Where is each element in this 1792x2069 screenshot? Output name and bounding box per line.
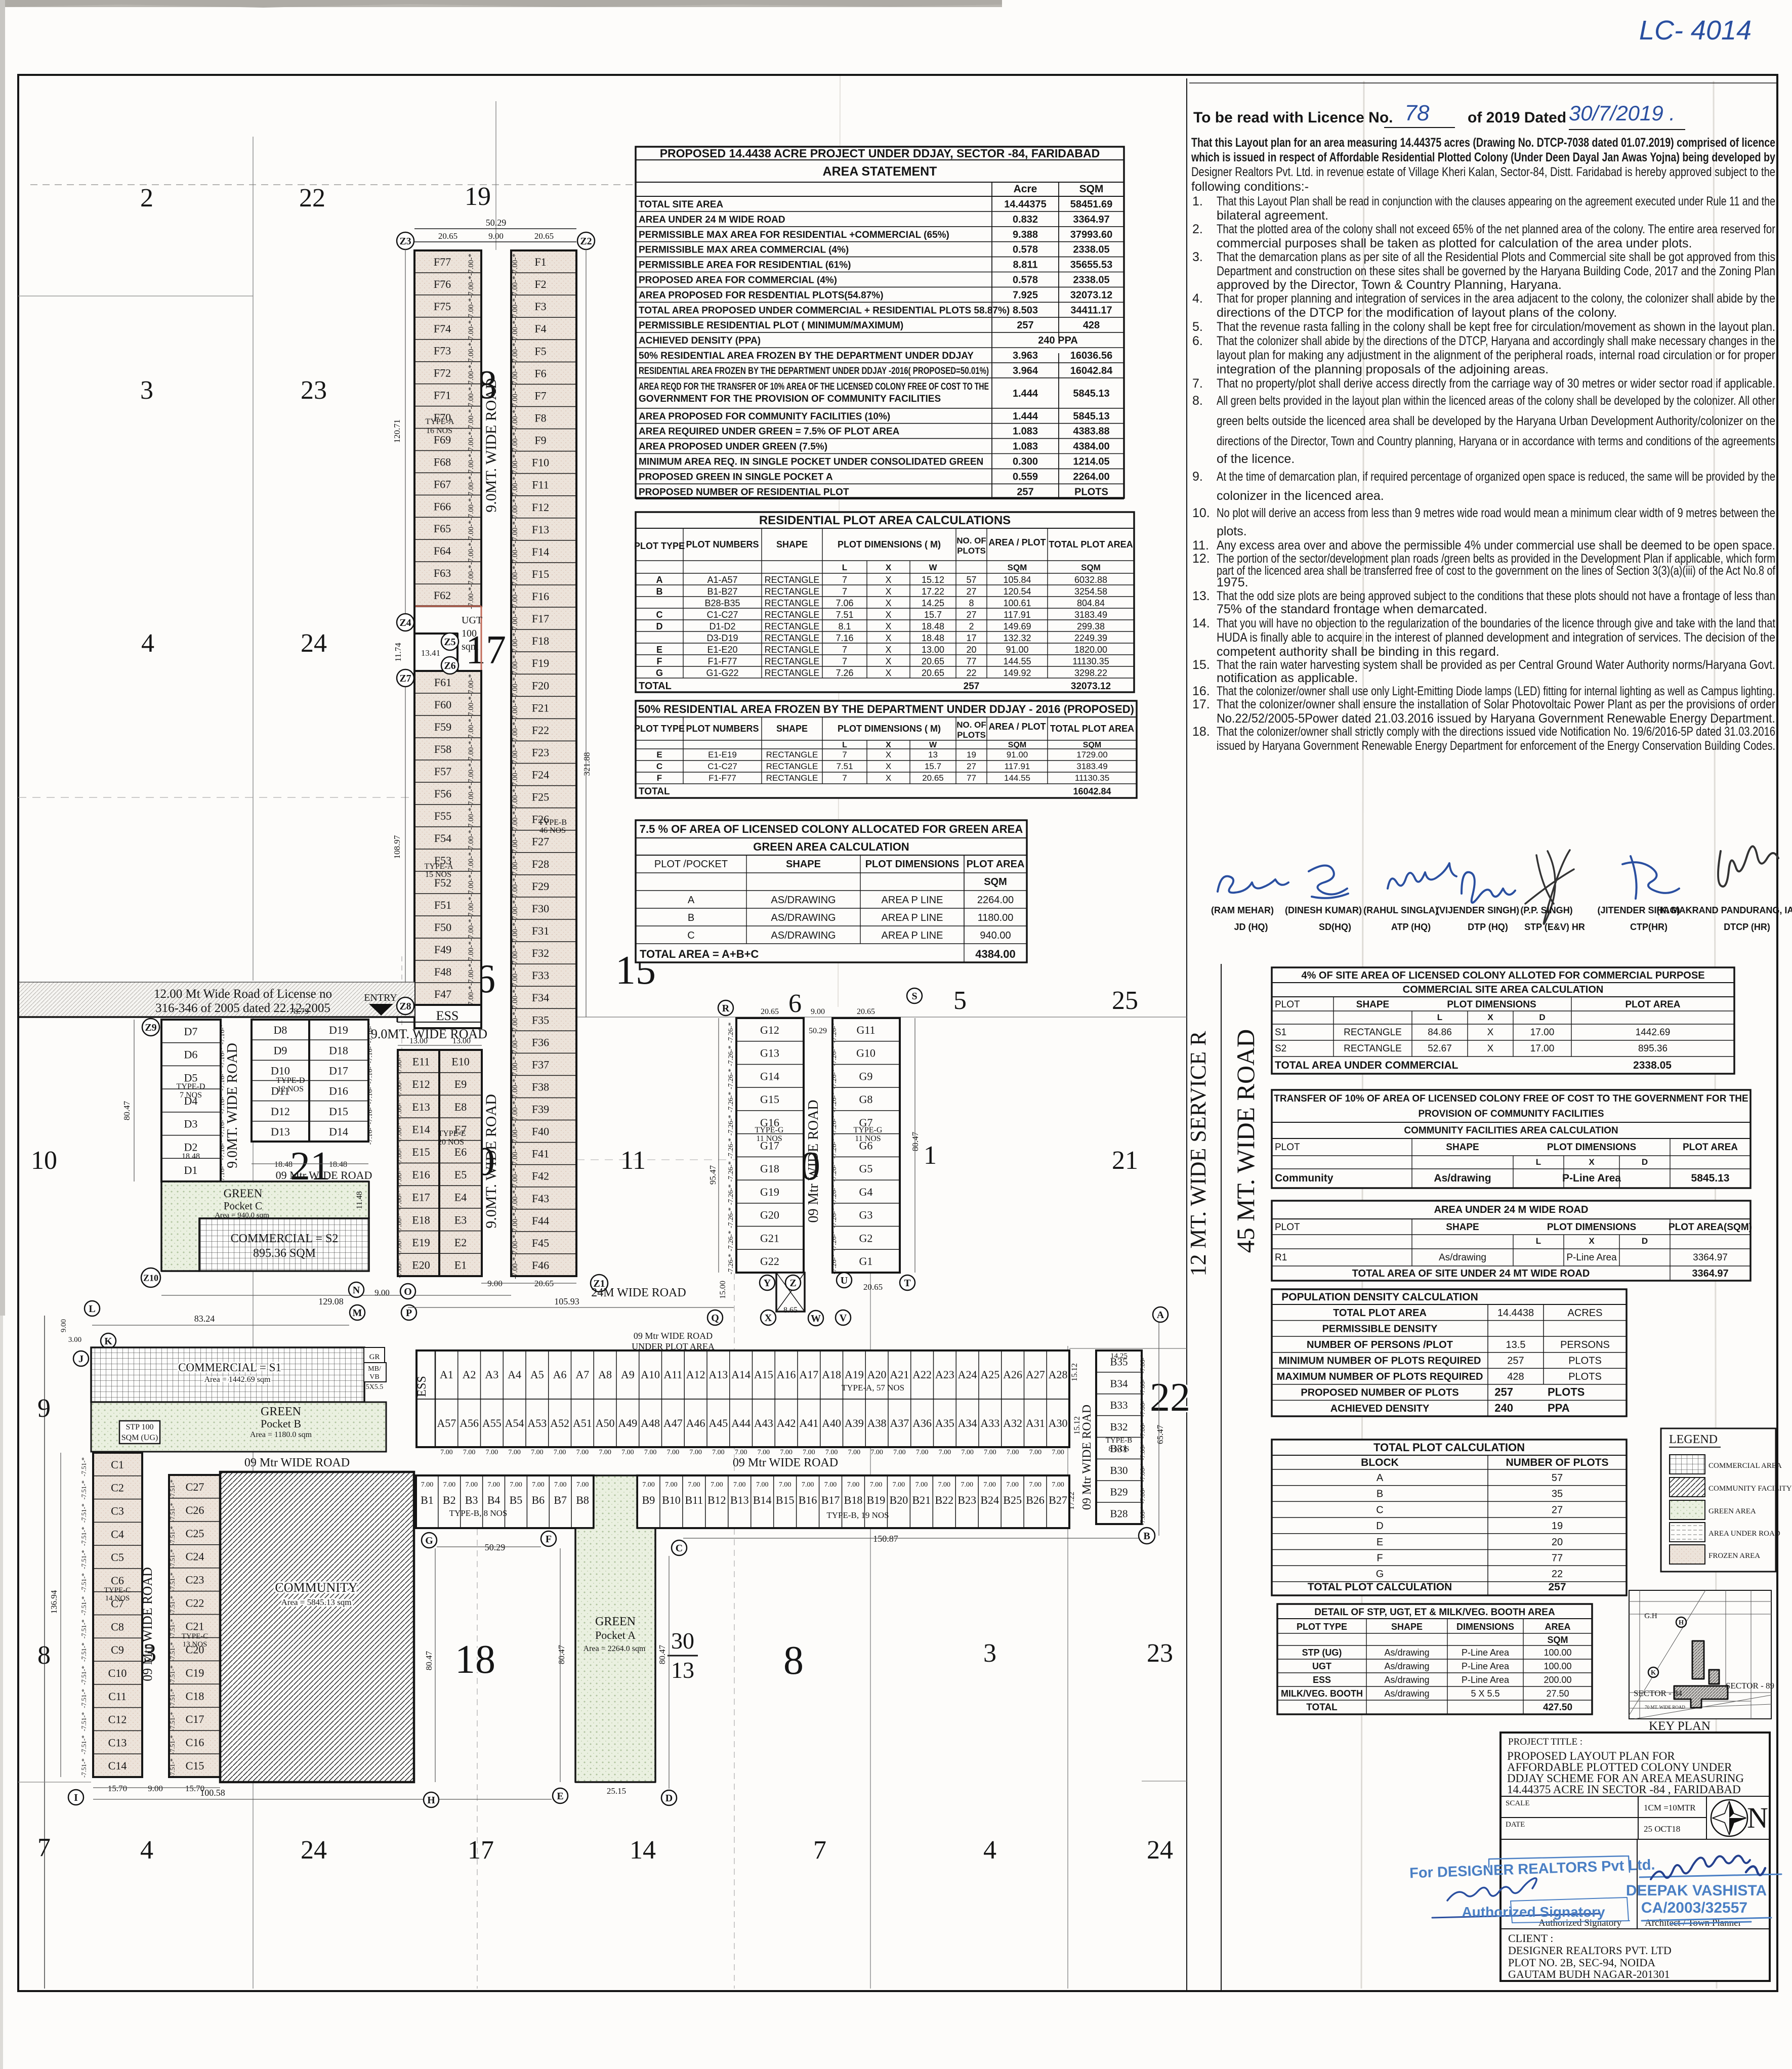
svg-text:GREEN: GREEN: [595, 1615, 636, 1628]
svg-text:78: 78: [1405, 101, 1430, 125]
svg-text:F1-F77: F1-F77: [707, 656, 737, 666]
svg-text:-7.51-*: -7.51-*: [169, 1573, 176, 1592]
svg-text:PLOT TYPE: PLOT TYPE: [1297, 1622, 1347, 1632]
svg-text:X: X: [1487, 1012, 1493, 1022]
svg-text:3364.97: 3364.97: [1693, 1252, 1728, 1263]
svg-text:R: R: [722, 1003, 730, 1014]
svg-text:PERSONS: PERSONS: [1560, 1339, 1610, 1350]
svg-text:V: V: [840, 1313, 847, 1324]
svg-text:Acre: Acre: [1014, 183, 1037, 195]
svg-text:E14: E14: [412, 1123, 430, 1135]
svg-text:3.963: 3.963: [1013, 350, 1038, 361]
svg-text:136.94: 136.94: [49, 1590, 59, 1614]
svg-text:SQM: SQM: [1008, 741, 1026, 749]
svg-text:C17: C17: [186, 1713, 204, 1725]
svg-text:-7.00-*: -7.00-*: [396, 1122, 403, 1143]
svg-text:PLOT AREA: PLOT AREA: [1683, 1142, 1738, 1153]
svg-text:HUDA is finally able to acquir: HUDA is finally able to acquire in the i…: [1217, 630, 1775, 645]
svg-text:-7.51-*: -7.51-*: [169, 1712, 176, 1731]
svg-text:TOTAL AREA PROPOSED UNDER COMM: TOTAL AREA PROPOSED UNDER COMMERCIAL + R…: [639, 305, 1010, 316]
svg-text:17.22: 17.22: [922, 586, 944, 597]
svg-text:COMMUNITY FACILITY: COMMUNITY FACILITY: [1708, 1485, 1792, 1493]
svg-text:A52: A52: [550, 1417, 569, 1429]
svg-text:C16: C16: [186, 1736, 204, 1749]
svg-text:13.00: 13.00: [409, 1037, 428, 1045]
svg-text:SHAPE: SHAPE: [1446, 1142, 1479, 1153]
svg-text:SECTOR - 89: SECTOR - 89: [1726, 1681, 1774, 1691]
svg-text:F67: F67: [434, 478, 451, 490]
svg-text:A46: A46: [686, 1417, 705, 1429]
svg-text:DETAIL OF STP, UGT, ET & MILK/: DETAIL OF STP, UGT, ET & MILK/VEG. BOOTH…: [1314, 1607, 1555, 1618]
svg-text:5845.13: 5845.13: [1073, 388, 1109, 399]
svg-text:7.00: 7.00: [486, 1449, 498, 1456]
svg-text:ACHIEVED DENSITY: ACHIEVED DENSITY: [1330, 1403, 1430, 1414]
svg-text:A15: A15: [754, 1368, 773, 1381]
svg-text:-7.26-*: -7.26-*: [830, 1231, 838, 1251]
svg-text:PROJECT TITLE :: PROJECT TITLE :: [1508, 1737, 1582, 1747]
svg-text:E11: E11: [412, 1055, 430, 1068]
svg-text:132.32: 132.32: [1003, 633, 1031, 643]
svg-text:which is issued in respect of: which is issued in respect of Affordable…: [1191, 150, 1775, 164]
svg-text:25: 25: [1112, 986, 1138, 1015]
svg-text:TOTAL: TOTAL: [639, 681, 672, 692]
svg-text:2264.00: 2264.00: [977, 895, 1014, 906]
svg-text:A26: A26: [1003, 1368, 1022, 1381]
svg-text:G1: G1: [859, 1255, 873, 1268]
svg-text:G19: G19: [760, 1186, 779, 1198]
svg-text:layout plan for making any adj: layout plan for making any adjustment in…: [1217, 348, 1775, 362]
svg-text:B7: B7: [554, 1494, 567, 1506]
svg-text:UNDER PLOT AREA: UNDER PLOT AREA: [632, 1341, 715, 1352]
svg-text:TYPE-B, 8 NOS: TYPE-B, 8 NOS: [449, 1508, 508, 1518]
svg-text:competent authority shall be b: competent authority shall be binding in …: [1217, 645, 1499, 659]
svg-text:AS/DRAWING: AS/DRAWING: [771, 895, 836, 906]
svg-text:SHAPE: SHAPE: [1356, 999, 1389, 1010]
svg-text:-7.51-*: -7.51-*: [169, 1735, 176, 1754]
svg-text:J: J: [78, 1354, 84, 1365]
svg-text:-7.26-*: -7.26-*: [727, 1138, 735, 1159]
svg-text:A12: A12: [686, 1368, 705, 1381]
svg-text:TYPE-B: TYPE-B: [1106, 1437, 1133, 1445]
svg-text:-7.26-*: -7.26-*: [727, 1161, 735, 1182]
svg-text:TOTAL: TOTAL: [1306, 1702, 1338, 1713]
svg-text:-7.00-*: -7.00-*: [511, 1257, 519, 1279]
svg-text:C13: C13: [108, 1736, 127, 1749]
svg-text:integration of the planning pr: integration of the planning proposals of…: [1217, 362, 1549, 376]
svg-text:E: E: [557, 1791, 563, 1802]
svg-text:DEEPAK VASHISTA: DEEPAK VASHISTA: [1626, 1882, 1767, 1899]
svg-text:-7.00-*: -7.00-*: [396, 1077, 403, 1097]
svg-text:TOTAL PLOT CALCULATION: TOTAL PLOT CALCULATION: [1308, 1581, 1452, 1593]
svg-text:X: X: [886, 750, 891, 759]
svg-text:14 NOS: 14 NOS: [105, 1594, 130, 1602]
svg-text:A37: A37: [890, 1417, 909, 1429]
svg-text:-7.26-*: -7.26-*: [727, 1045, 735, 1066]
svg-text:Area = 5845.13 sqm: Area = 5845.13 sqm: [281, 1597, 352, 1607]
svg-text:7.00: 7.00: [825, 1449, 838, 1456]
svg-text:RECTANGLE: RECTANGLE: [765, 610, 820, 620]
svg-text:E6: E6: [454, 1146, 467, 1158]
svg-text:A10: A10: [641, 1368, 660, 1381]
svg-text:84.86: 84.86: [1428, 1027, 1452, 1038]
svg-text:427.50: 427.50: [1543, 1702, 1572, 1713]
svg-text:AREA UNDER ROAD: AREA UNDER ROAD: [1708, 1530, 1780, 1538]
svg-text:A38: A38: [867, 1417, 887, 1429]
svg-text:RECTANGLE: RECTANGLE: [765, 633, 820, 643]
svg-text:F51: F51: [434, 899, 451, 911]
svg-text:PROPOSED AREA FOR COMMERCIAL: PROPOSED AREA FOR COMMERCIAL (4%): [639, 275, 837, 285]
svg-text:18.48: 18.48: [274, 1160, 293, 1169]
svg-text:C21: C21: [186, 1620, 204, 1633]
svg-text:Z10: Z10: [143, 1273, 158, 1283]
svg-text:A55: A55: [482, 1417, 502, 1429]
svg-text:G21: G21: [760, 1232, 779, 1244]
svg-text:8.65: 8.65: [783, 1306, 798, 1315]
svg-text:895.36 SQM: 895.36 SQM: [253, 1247, 316, 1260]
svg-text:-7.06-*: -7.06-*: [1139, 1463, 1146, 1482]
svg-text:58451.69: 58451.69: [1070, 199, 1112, 210]
svg-text:-7.51-*: -7.51-*: [169, 1619, 176, 1638]
svg-text:-7.26-*: -7.26-*: [727, 1022, 735, 1043]
svg-text:G: G: [1376, 1569, 1384, 1580]
svg-text:15 NOS: 15 NOS: [425, 870, 451, 879]
svg-text:ESS: ESS: [436, 1008, 459, 1023]
svg-text:18.48: 18.48: [922, 633, 944, 643]
svg-text:A45: A45: [709, 1417, 728, 1429]
svg-text:F21: F21: [532, 701, 549, 714]
svg-text:0.578: 0.578: [1013, 244, 1038, 256]
svg-text:8.1: 8.1: [838, 621, 851, 631]
svg-text:TYPE-E: TYPE-E: [438, 1129, 466, 1138]
svg-text:-7.51-*: -7.51-*: [80, 1457, 88, 1476]
svg-text:7.00: 7.00: [780, 1449, 793, 1456]
svg-text:W: W: [929, 741, 937, 749]
svg-text:-7.51-*: -7.51-*: [169, 1665, 176, 1684]
svg-text:16 NOS: 16 NOS: [426, 427, 452, 435]
svg-text:2: 2: [140, 184, 153, 213]
svg-text:1: 1: [924, 1141, 937, 1170]
svg-text:G14: G14: [760, 1070, 779, 1082]
svg-text:C22: C22: [186, 1597, 204, 1610]
svg-text:F35: F35: [532, 1014, 549, 1026]
svg-text:1.083: 1.083: [1013, 441, 1038, 452]
svg-text:Designer Realtors Pvt. Ltd. in: Designer Realtors Pvt. Ltd. in revenue e…: [1191, 165, 1775, 179]
svg-text:of the licence.: of the licence.: [1217, 452, 1295, 466]
svg-text:PERMISSIBLE DENSITY: PERMISSIBLE DENSITY: [1322, 1323, 1438, 1334]
svg-text:TOTAL AREA OF SITE UNDER 24 MT: TOTAL AREA OF SITE UNDER 24 MT WIDE ROAD: [1352, 1268, 1590, 1279]
svg-text:D13: D13: [271, 1125, 290, 1138]
svg-text:7.00: 7.00: [893, 1449, 906, 1456]
svg-text:7.5 % OF AREA OF LICENSED CO: 7.5 % OF AREA OF LICENSED COLONY ALLOCAT…: [640, 823, 1023, 835]
svg-text:That no property/plot shall de: That no property/plot shall derive acces…: [1217, 376, 1775, 391]
svg-text:E19: E19: [412, 1236, 430, 1249]
svg-text:-7.26-*: -7.26-*: [727, 1231, 735, 1251]
svg-text:P-Line Area: P-Line Area: [1462, 1661, 1510, 1671]
svg-text:11: 11: [620, 1146, 646, 1175]
svg-text:PLOTS: PLOTS: [1568, 1356, 1602, 1367]
svg-text:TYPE-A, 57 NOS: TYPE-A, 57 NOS: [842, 1383, 904, 1392]
svg-text:-7.16-*: -7.16-*: [219, 1024, 226, 1044]
svg-text:9.388: 9.388: [1013, 229, 1038, 240]
svg-text:22: 22: [966, 668, 976, 678]
svg-text:A5: A5: [530, 1368, 544, 1381]
svg-text:B: B: [688, 912, 694, 923]
svg-text:7.00: 7.00: [576, 1449, 589, 1456]
svg-text:X: X: [885, 668, 891, 678]
svg-text:7.00: 7.00: [758, 1449, 770, 1456]
svg-text:B25: B25: [1003, 1494, 1022, 1506]
svg-text:F58: F58: [434, 743, 451, 755]
svg-text:7.00: 7.00: [440, 1449, 453, 1456]
svg-text:directions of the DTCP for the: directions of the DTCP for the modificat…: [1217, 306, 1617, 320]
svg-text:X: X: [1487, 1043, 1494, 1054]
svg-text:(RAM MEHAR): (RAM MEHAR): [1211, 905, 1274, 915]
svg-text:149.69: 149.69: [1003, 621, 1031, 631]
svg-text:AREA / PLOT: AREA / PLOT: [988, 722, 1046, 732]
svg-text:NO. OF: NO. OF: [956, 720, 986, 730]
svg-text:G10: G10: [856, 1047, 876, 1060]
svg-text:7.51: 7.51: [836, 762, 853, 771]
svg-text:MINIMUM NUMBER OF PLOTS REQUI: MINIMUM NUMBER OF PLOTS REQUIRED: [1279, 1356, 1481, 1367]
svg-text:A40: A40: [822, 1417, 841, 1429]
svg-text:7.00: 7.00: [847, 1481, 860, 1489]
svg-text:20.65: 20.65: [761, 1007, 779, 1016]
svg-text:7.00: 7.00: [756, 1481, 769, 1489]
svg-text:F40: F40: [532, 1125, 549, 1138]
svg-text:09 Mtr WIDE ROAD: 09 Mtr WIDE ROAD: [1080, 1405, 1094, 1510]
svg-text:F61: F61: [434, 676, 451, 689]
svg-text:-7.26-*: -7.26-*: [830, 1254, 838, 1275]
svg-text:F12: F12: [532, 501, 549, 514]
svg-text:11 NOS: 11 NOS: [756, 1134, 782, 1143]
svg-text:1.: 1.: [1192, 194, 1203, 208]
svg-text:7: 7: [842, 645, 847, 655]
svg-text:21: 21: [1112, 1146, 1138, 1175]
svg-text:F29: F29: [532, 880, 549, 893]
svg-text:G: G: [425, 1535, 433, 1546]
svg-text:20.65: 20.65: [863, 1282, 883, 1292]
svg-text:7: 7: [842, 586, 847, 597]
svg-text:1442.69: 1442.69: [1636, 1027, 1671, 1038]
svg-text:-7.26-*: -7.26-*: [830, 1092, 838, 1113]
svg-text:AREA PROPOSED FOR RESDENTIAL P: AREA PROPOSED FOR RESDENTIAL PLOTS(54.87…: [639, 290, 884, 301]
svg-text:D18: D18: [329, 1044, 348, 1057]
svg-text:A44: A44: [731, 1417, 751, 1429]
svg-text:-7.06-*: -7.06-*: [1139, 1376, 1146, 1395]
svg-text:E: E: [656, 750, 662, 759]
svg-text:AREA REQUIRED UNDER GREEN = 7: AREA REQUIRED UNDER GREEN = 7.5% OF PLOT…: [639, 427, 900, 437]
svg-text:50% RESIDENTIAL AREA FROZEN BY: 50% RESIDENTIAL AREA FROZEN BY THE DEPAR…: [639, 351, 974, 361]
svg-text:-7.26-*: -7.26-*: [727, 1092, 735, 1113]
svg-text:PLOTS: PLOTS: [957, 730, 986, 740]
svg-text:100.61: 100.61: [1003, 598, 1031, 608]
svg-text:F18: F18: [532, 635, 549, 647]
svg-text:7.16: 7.16: [836, 633, 853, 643]
svg-text:(P.P. SINGH): (P.P. SINGH): [1520, 905, 1572, 915]
svg-text:RECTANGLE: RECTANGLE: [765, 621, 820, 631]
svg-text:D3: D3: [184, 1118, 198, 1130]
svg-text:GREEN: GREEN: [224, 1187, 263, 1200]
svg-text:7.00: 7.00: [893, 1481, 905, 1489]
svg-text:D: D: [1642, 1157, 1648, 1167]
svg-text:F25: F25: [532, 791, 549, 804]
svg-text:A43: A43: [754, 1417, 773, 1429]
svg-text:sqm: sqm: [462, 641, 479, 652]
svg-text:-7.51-*: -7.51-*: [80, 1573, 88, 1592]
svg-text:STP (E&V) HR: STP (E&V) HR: [1524, 922, 1585, 932]
svg-text:7.00: 7.00: [554, 1481, 567, 1489]
svg-text:(DINESH KUMAR): (DINESH KUMAR): [1285, 905, 1362, 915]
svg-text:-7.51-*: -7.51-*: [80, 1666, 88, 1685]
svg-text:7.00: 7.00: [689, 1449, 702, 1456]
svg-text:O: O: [404, 1286, 412, 1297]
svg-text:A9: A9: [621, 1368, 635, 1381]
svg-text:3183.49: 3183.49: [1076, 762, 1107, 771]
svg-text:22: 22: [1552, 1569, 1563, 1580]
svg-text:PLOT AREA: PLOT AREA: [1625, 999, 1680, 1010]
svg-text:7.51: 7.51: [836, 610, 853, 620]
svg-text:14.25: 14.25: [1110, 1352, 1128, 1360]
svg-text:-7.00-*: -7.00-*: [396, 1145, 403, 1165]
svg-text:F74: F74: [434, 322, 451, 335]
svg-text:ESS: ESS: [415, 1376, 429, 1397]
svg-text:F: F: [657, 773, 662, 783]
svg-text:issued by Haryana Government R: issued by Haryana Government Renewable E…: [1217, 739, 1775, 753]
svg-text:24: 24: [1147, 1836, 1173, 1865]
svg-text:E4: E4: [454, 1191, 467, 1204]
svg-text:-7.00-*: -7.00-*: [396, 1212, 403, 1233]
svg-text:B32: B32: [1110, 1421, 1128, 1433]
svg-text:plots.: plots.: [1217, 524, 1247, 538]
svg-text:-7.51-*: -7.51-*: [80, 1619, 88, 1638]
svg-text:F75: F75: [434, 300, 451, 313]
svg-text:22: 22: [1150, 1375, 1190, 1420]
svg-text:09 Mtr WIDE ROAD: 09 Mtr WIDE ROAD: [634, 1331, 713, 1341]
svg-text:A: A: [656, 575, 663, 585]
svg-text:F7: F7: [534, 389, 546, 402]
svg-text:E18: E18: [412, 1213, 430, 1226]
svg-text:7.00: 7.00: [735, 1449, 747, 1456]
svg-text:5.: 5.: [1192, 320, 1203, 334]
svg-text:F34: F34: [532, 991, 549, 1004]
svg-text:ENTRY: ENTRY: [364, 992, 397, 1003]
svg-text:NUMBER OF PLOTS: NUMBER OF PLOTS: [1506, 1457, 1609, 1468]
svg-text:57: 57: [1552, 1472, 1563, 1484]
svg-text:TYPE-B: TYPE-B: [538, 818, 567, 827]
svg-text:AREA P LINE: AREA P LINE: [882, 912, 943, 923]
svg-text:PLOT NUMBERS: PLOT NUMBERS: [686, 724, 759, 734]
svg-text:A16: A16: [777, 1368, 796, 1381]
svg-text:7.00: 7.00: [961, 1449, 974, 1456]
svg-text:RECTANGLE: RECTANGLE: [766, 762, 818, 771]
svg-text:09 Mtr WIDE ROAD: 09 Mtr WIDE ROAD: [276, 1169, 372, 1181]
svg-text:SQM (UG): SQM (UG): [121, 1433, 158, 1442]
svg-text:F23: F23: [532, 746, 549, 758]
svg-text:To be read with Licence No.: To be read with Licence No.: [1193, 109, 1393, 126]
svg-text:PROVISION OF COMMUNITY FACILIT: PROVISION OF COMMUNITY FACILITIES: [1418, 1109, 1604, 1119]
svg-text:That this Layout plan for an a: That this Layout plan for an area measur…: [1191, 136, 1775, 150]
svg-text:14.4438: 14.4438: [1497, 1307, 1534, 1319]
svg-text:E5: E5: [454, 1168, 467, 1181]
svg-text:GR: GR: [369, 1353, 380, 1361]
svg-text:That the demarcation plans as: That the demarcation plans as per site o…: [1217, 250, 1775, 264]
svg-text:W: W: [811, 1313, 821, 1324]
svg-text:RESIDENTIAL PLOT AREA CALCULAT: RESIDENTIAL PLOT AREA CALCULATIONS: [759, 514, 1011, 527]
svg-text:-7.26-*: -7.26-*: [830, 1045, 838, 1066]
svg-text:POPULATION DENSITY CALCULATION: POPULATION DENSITY CALCULATION: [1281, 1291, 1478, 1303]
svg-text:C8: C8: [111, 1620, 124, 1633]
svg-text:PERMISSIBLE MAX AREA FOR RESID: PERMISSIBLE MAX AREA FOR RESIDENTIAL +CO…: [639, 230, 949, 240]
svg-text:F46: F46: [532, 1259, 549, 1272]
svg-text:4384.00: 4384.00: [1073, 441, 1109, 452]
svg-text:F57: F57: [434, 765, 451, 778]
svg-text:-7.51-*: -7.51-*: [80, 1550, 88, 1569]
svg-text:-7.26-*: -7.26-*: [727, 1207, 735, 1228]
svg-text:B10: B10: [662, 1494, 681, 1506]
svg-text:20: 20: [966, 645, 976, 655]
svg-text:A51: A51: [573, 1417, 592, 1429]
svg-text:X: X: [885, 610, 891, 620]
svg-text:E20: E20: [412, 1259, 430, 1272]
svg-text:A: A: [1377, 1472, 1384, 1484]
svg-text:L: L: [842, 563, 847, 572]
svg-text:83.24: 83.24: [194, 1314, 215, 1324]
svg-text:20.65: 20.65: [922, 773, 944, 783]
svg-text:B16: B16: [799, 1494, 817, 1506]
svg-text:Authorized Signatory: Authorized Signatory: [1462, 1904, 1605, 1920]
svg-text:R1: R1: [1275, 1252, 1287, 1263]
svg-text:L: L: [842, 741, 847, 749]
svg-text:10.: 10.: [1192, 506, 1210, 520]
svg-text:E1: E1: [454, 1259, 467, 1272]
svg-text:commercial purposes shall be t: commercial purposes shall be taken as pl…: [1217, 236, 1692, 250]
svg-text:D7: D7: [184, 1025, 198, 1038]
svg-text:Area = 1442.69 sqm: Area = 1442.69 sqm: [204, 1375, 271, 1384]
svg-text:PLOT DIMENSIONS: PLOT DIMENSIONS: [865, 859, 960, 870]
svg-text:T: T: [904, 1278, 911, 1289]
svg-text:VB: VB: [369, 1373, 379, 1381]
svg-text:11.74: 11.74: [393, 643, 403, 662]
svg-text:8: 8: [783, 1638, 804, 1683]
svg-text:A19: A19: [845, 1368, 864, 1381]
svg-text:P-Line Area: P-Line Area: [1562, 1172, 1621, 1184]
svg-text:X: X: [765, 1313, 772, 1324]
svg-text:15.7: 15.7: [924, 610, 942, 620]
svg-text:11130.35: 11130.35: [1072, 656, 1109, 666]
svg-text:257: 257: [1507, 1356, 1524, 1367]
svg-text:Z8: Z8: [399, 1001, 411, 1012]
svg-text:7.00: 7.00: [938, 1481, 951, 1489]
svg-text:F44: F44: [532, 1214, 549, 1227]
svg-text:That the plotted area of the c: That the plotted area of the colony shal…: [1217, 222, 1775, 236]
svg-text:A32: A32: [1003, 1417, 1022, 1429]
svg-text:F31: F31: [532, 924, 549, 937]
svg-text:2338.05: 2338.05: [1073, 274, 1109, 285]
svg-text:AREA UNDER 24 M WIDE ROAD: AREA UNDER 24 M WIDE ROAD: [639, 215, 785, 225]
svg-text:3.964: 3.964: [1013, 365, 1038, 376]
svg-text:A34: A34: [958, 1417, 977, 1429]
svg-text:RECTANGLE: RECTANGLE: [765, 586, 820, 597]
svg-text:A56: A56: [460, 1417, 479, 1429]
svg-text:-7.26-*: -7.26-*: [830, 1161, 838, 1182]
svg-text:JD (HQ): JD (HQ): [1234, 922, 1268, 932]
svg-text:F69: F69: [434, 433, 451, 446]
svg-text:-7.51-*: -7.51-*: [80, 1527, 88, 1546]
svg-text:F76: F76: [434, 278, 451, 290]
svg-text:CTP(HR): CTP(HR): [1630, 922, 1668, 932]
svg-text:30/7/2019 .: 30/7/2019 .: [1569, 101, 1675, 125]
svg-text:4: 4: [140, 1836, 153, 1865]
